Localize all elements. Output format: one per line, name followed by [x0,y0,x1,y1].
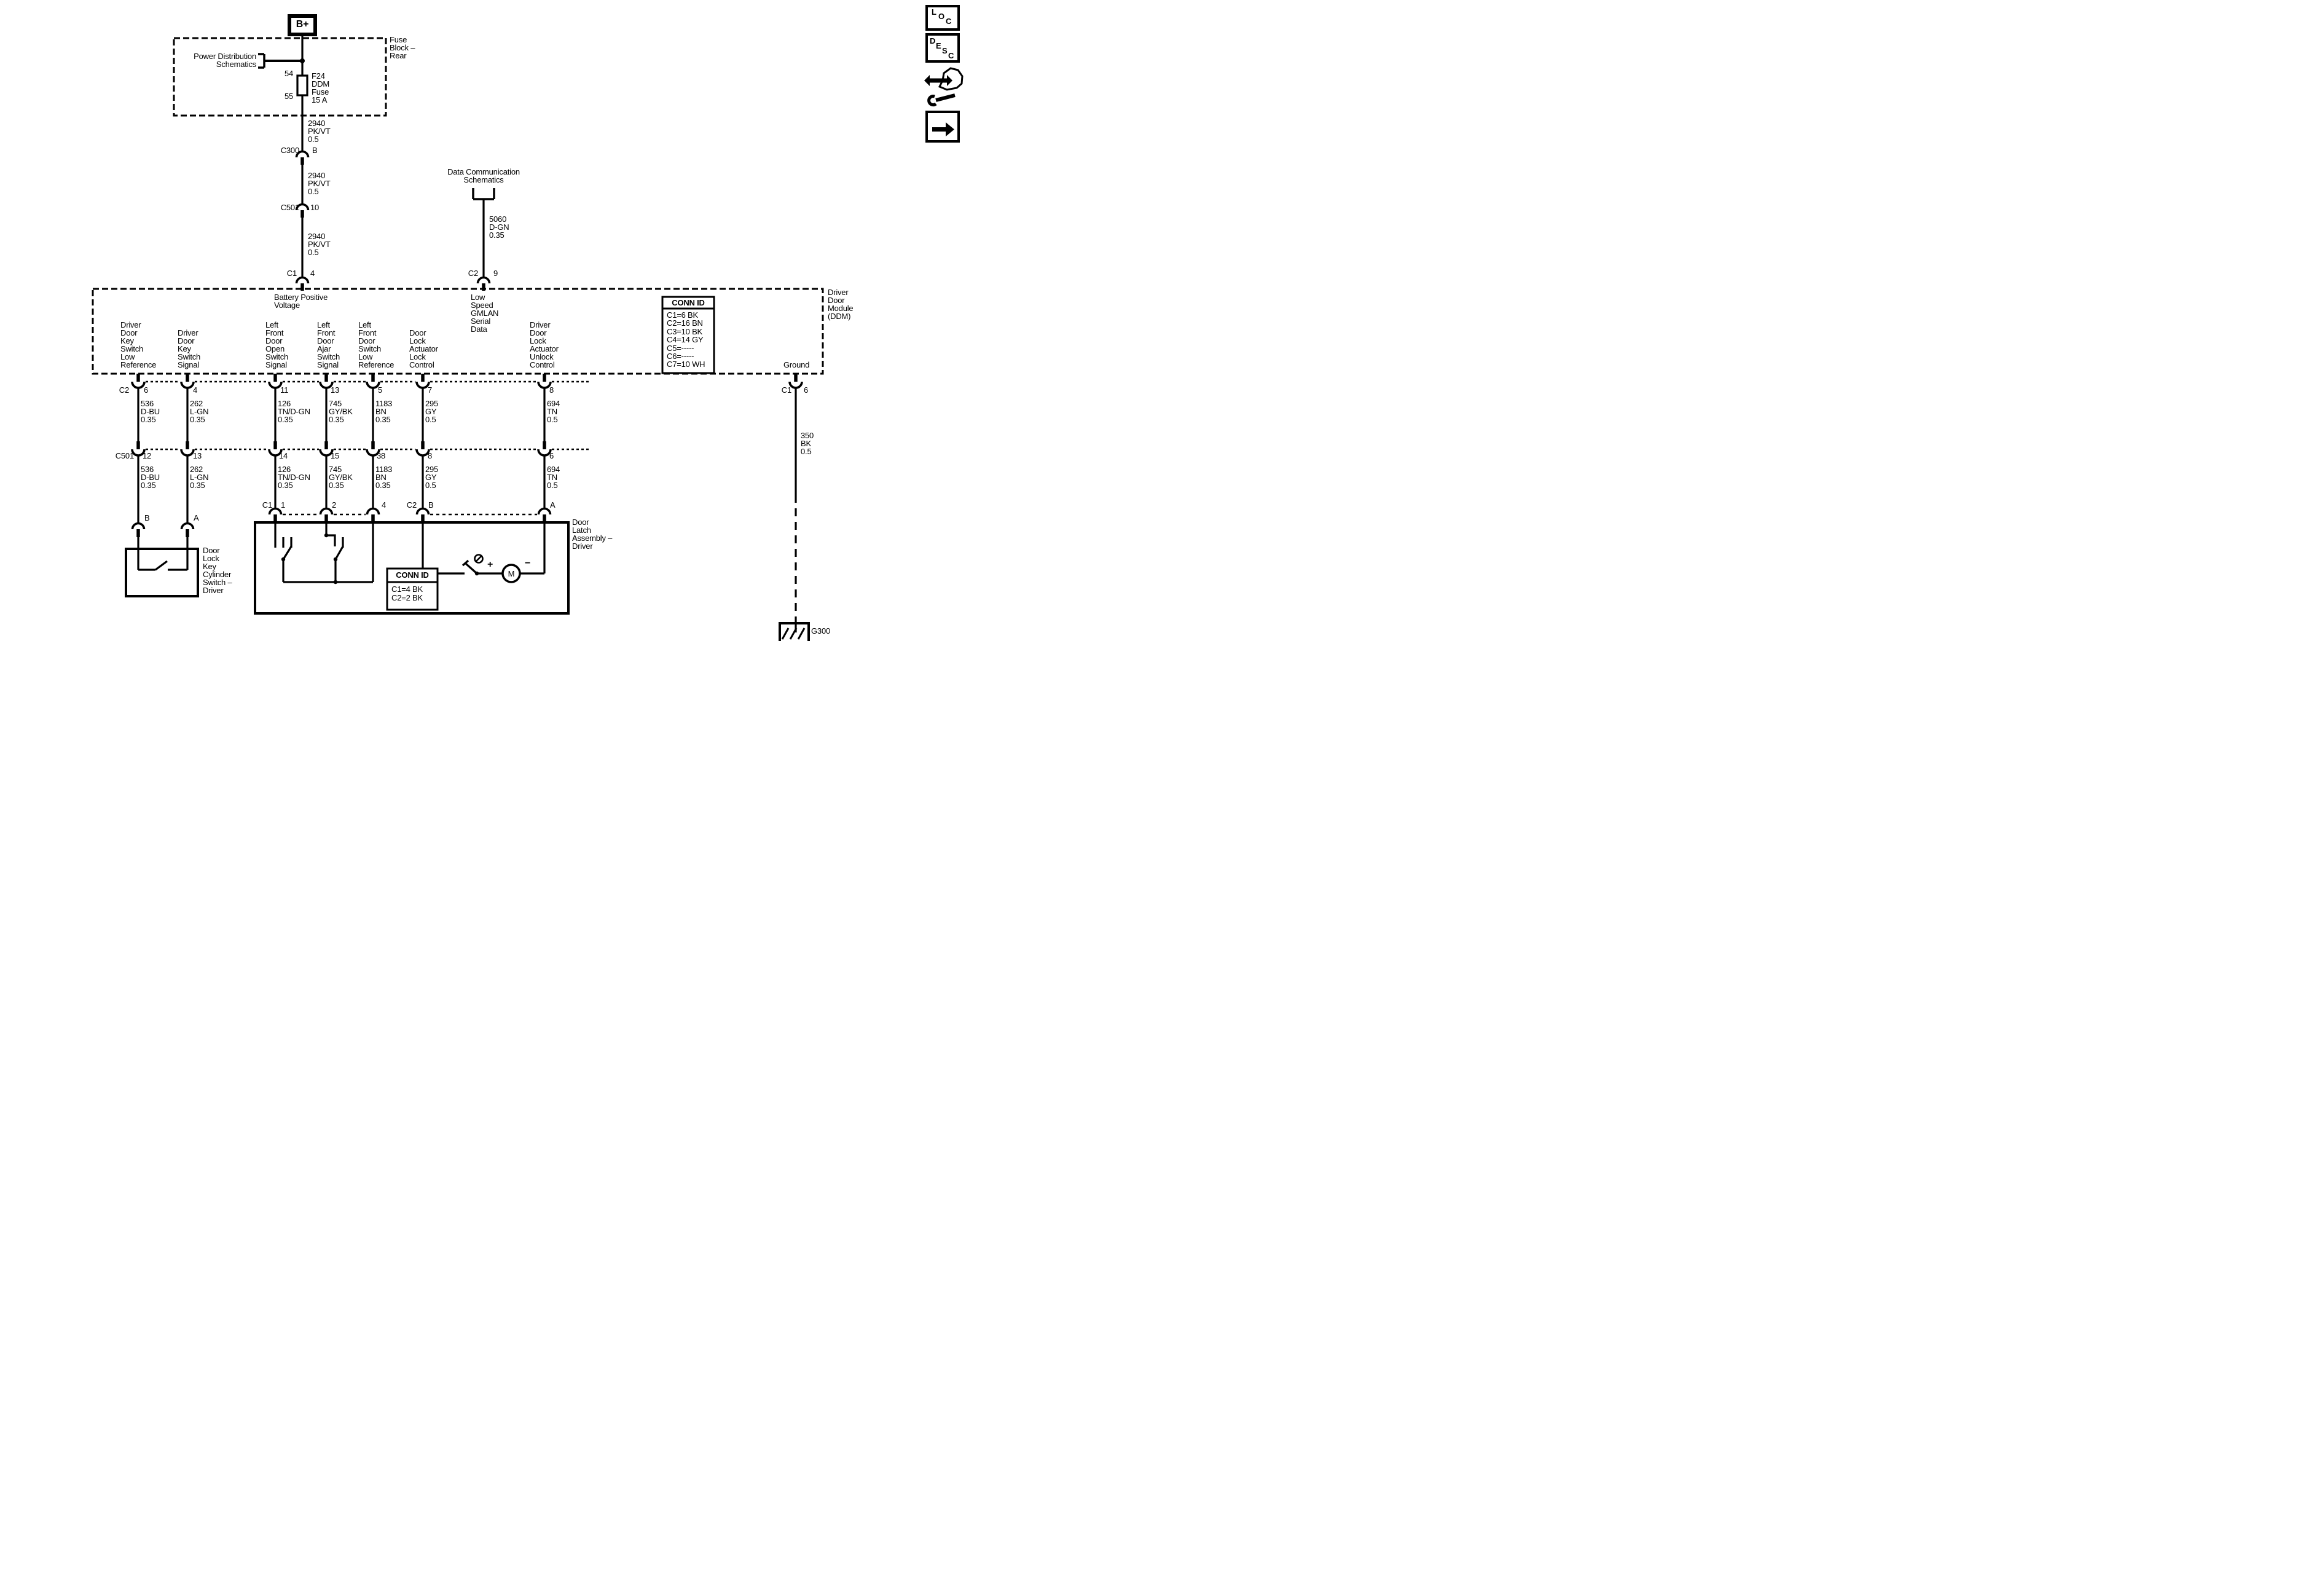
connector-label-c300: C300 [272,146,299,154]
latch-pin-a: A [550,501,555,509]
ddm-conn-id-rows: C1=6 BK C2=16 BN C3=10 BK C4=14 GY C5=--… [667,311,705,369]
row2-pin-13: 13 [193,452,202,460]
row1-connector-label: C2 [103,386,129,394]
motor-minus-sign: − [525,559,530,569]
wire-295-row2: 295 GY 0.5 [425,465,438,489]
row1-pin-8: 8 [549,386,554,394]
desc-letter-c: C [948,52,954,60]
wire-1183-row1: 1183 BN 0.35 [375,400,392,423]
repair-instructions-icon[interactable] [924,68,962,105]
motor-m-label: M [507,570,516,578]
desc-letter-e: E [936,42,941,50]
data-comm-ref: Data Communication Schematics [430,168,537,184]
row2-pin-14: 14 [279,452,288,460]
wiring-diagram: B+ Fuse Block – Rear Power Distribution … [0,0,964,655]
wire-1183-row2: 1183 BN 0.35 [375,465,392,489]
c2-pin-9: 9 [493,269,498,277]
b-plus-label: B+ [289,20,315,30]
loc-letter-l: L [932,8,936,16]
wire-label-350: 350 BK 0.5 [801,431,814,455]
ddm-gmlan-label: Low Speed GMLAN Serial Data [471,293,498,333]
latch-pin-4: 4 [382,501,386,509]
ground-pin-6: 6 [804,386,808,394]
latch-c1-label: C1 [257,501,272,509]
connector-label-c501: C501 [272,203,299,211]
ddm-conn-id-title: CONN ID [662,299,714,307]
desc-letter-s: S [942,47,948,55]
keycyl-pin-a: A [194,514,198,522]
row2-pin-38: 38 [377,452,385,460]
power-distribution-ref: Power Distribution Schematics [181,52,256,68]
wire-745-row2: 745 GY/BK 0.35 [329,465,353,489]
ddm-fn-unlock-control: Driver Door Lock Actuator Unlock Control [530,321,559,369]
latch-pin-b: B [428,501,433,509]
row2-connector-label: C501 [100,452,134,460]
wire-262-row1: 262 L-GN 0.35 [190,400,208,423]
fuse-pin-55: 55 [280,92,293,100]
ground-symbol [780,623,809,641]
latch-switches [275,522,373,584]
wire-label-2940-3: 2940 PK/VT 0.5 [308,232,331,256]
fuse-name: F24 DDM Fuse 15 A [312,72,329,104]
wire-label-2940-2: 2940 PK/VT 0.5 [308,171,331,195]
desc-letter-d: D [930,37,935,45]
wire-126-row2: 126 TN/D-GN 0.35 [278,465,310,489]
wire-label-2940-1: 2940 PK/VT 0.5 [308,119,331,143]
wire-536-row1: 536 D-BU 0.35 [141,400,160,423]
row2-pin-15: 15 [331,452,339,460]
row1-pin-13: 13 [331,386,339,394]
latch-conn-id-rows: C1=4 BK C2=2 BK [391,585,423,602]
next-button[interactable] [927,112,959,141]
latch-pin-1: 1 [281,501,285,509]
ddm-name-label: Driver Door Module (DDM) [828,288,853,320]
ground-connector-c1: C1 [777,386,791,394]
c300-pin-b: B [312,146,317,154]
connector-label-c2-data: C2 [462,269,478,277]
c501-pin-10: 10 [310,203,319,211]
row1-pin-6: 6 [144,386,148,394]
wire-262-row2: 262 L-GN 0.35 [190,465,208,489]
ddm-fn-lock-control: Door Lock Actuator Lock Control [409,329,438,369]
ddm-ground-label: Ground [783,361,809,369]
wire-536-row2: 536 D-BU 0.35 [141,465,160,489]
keycyl-entry-arcs [133,524,194,549]
wire-label-5060: 5060 D-GN 0.35 [489,215,509,239]
power-distribution-bracket [258,54,305,68]
ddm-fn-switch-low-ref: Left Front Door Switch Low Reference [358,321,394,369]
ground-id-g300: G300 [811,627,830,635]
row1-pin-7: 7 [428,386,432,394]
ddm-battery-input-label: Battery Positive Voltage [274,293,328,309]
latch-conn-id-title: CONN ID [387,571,438,579]
ddm-fn-key-low-ref: Driver Door Key Switch Low Reference [120,321,156,369]
c1-pin-4: 4 [310,269,315,277]
latch-c2-label: C2 [401,501,417,509]
ddm-fn-key-signal: Driver Door Key Switch Signal [178,329,200,369]
loc-letter-c: C [946,17,951,25]
connector-label-c1: C1 [282,269,297,277]
right-arrow-icon [932,122,954,136]
wire-295-row1: 295 GY 0.5 [425,400,438,423]
latch-entry-arcs [270,509,551,523]
row1-pin-11: 11 [280,386,288,394]
wire-126-row1: 126 TN/D-GN 0.35 [278,400,310,423]
loc-letter-o: O [938,12,944,20]
c501-stubs [136,441,546,449]
motor-plus-sign: + [487,560,493,570]
ddm-exit-stubs [136,374,798,382]
wire-694-row2: 694 TN 0.5 [547,465,560,489]
ddm-fn-open-switch: Left Front Door Open Switch Signal [265,321,288,369]
key-cylinder-name: Door Lock Key Cylinder Switch – Driver [203,546,232,594]
row1-pin-5: 5 [378,386,382,394]
keycyl-pin-b: B [144,514,149,522]
wire-745-row1: 745 GY/BK 0.35 [329,400,353,423]
row2-pin-8: 8 [428,452,432,460]
fuse-block-label: Fuse Block – Rear [390,36,415,60]
fuse-pin-54: 54 [280,69,293,77]
ddm-fn-ajar-switch: Left Front Door Ajar Switch Signal [317,321,340,369]
latch-pin-2: 2 [332,501,336,509]
latch-name: Door Latch Assembly – Driver [572,518,612,550]
row2-pin-6: 6 [549,452,554,460]
ddm-exit-arcs [132,382,802,388]
row2-pin-12: 12 [143,452,151,460]
key-cylinder-box [126,549,198,596]
wire-694-row1: 694 TN 0.5 [547,400,560,423]
fuse-symbol [297,76,307,95]
latch-motor-circuit [423,522,544,582]
row1-pin-4: 4 [193,386,197,394]
